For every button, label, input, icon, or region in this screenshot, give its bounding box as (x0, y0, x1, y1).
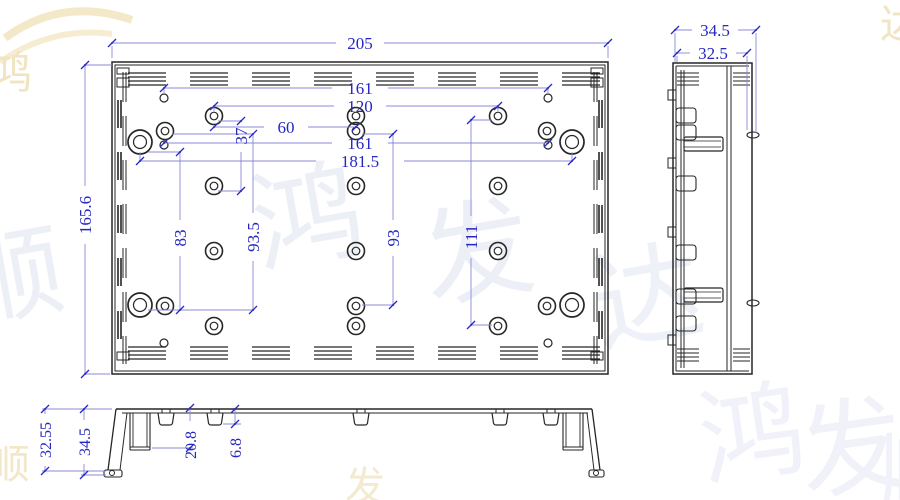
dim-tick-dot (83, 408, 85, 410)
dim-label-93-5: 93.5 (244, 222, 263, 252)
watermark-accent-char: 顺 (0, 442, 30, 488)
screw-boss-inner (210, 112, 218, 120)
screw-boss-inner (352, 322, 360, 330)
screw-boss-outer (206, 178, 223, 195)
bottom-tabs (158, 409, 559, 425)
dim-label-83: 83 (171, 230, 190, 247)
dim-tick-dot (84, 373, 86, 375)
watermark-char: 顺 (0, 211, 73, 344)
dim-label-165-6: 165.6 (76, 196, 95, 234)
dim-tick-dot (179, 151, 181, 153)
pilot-hole (544, 339, 552, 347)
dim-tick-dot (84, 64, 86, 66)
dim-tick-dot (547, 142, 549, 144)
dim-label-37: 37 (232, 127, 251, 145)
dim-tick-dot (44, 408, 46, 410)
dim-label-20-8: 20.8 (183, 431, 200, 459)
corner-boss-inner (134, 136, 147, 149)
dim-tick-dot (252, 309, 254, 311)
bottom-left-foot-pad (110, 471, 115, 476)
dim-tick-dot (392, 304, 394, 306)
dim-tick-dot (607, 42, 609, 44)
cad-drawing-sheet: 鸿 发 顺 达 鸿 发 顺 达 鸿 顺 发 (0, 0, 900, 500)
corner-boss-outer (560, 130, 584, 154)
dim-tick-dot (252, 133, 254, 135)
dim-label-181-5: 181.5 (341, 152, 379, 171)
watermark-char: 顺 (878, 422, 900, 500)
watermark-accent-char: 发 (345, 464, 385, 500)
screw-boss-outer (206, 243, 223, 260)
bottom-tab (353, 413, 369, 425)
dim-label-120: 120 (347, 97, 373, 116)
dim-label-side-32-5: 32.5 (698, 44, 728, 63)
dim-tick-dot (163, 142, 165, 144)
dim-tick-dot (674, 29, 676, 31)
dim-label-205: 205 (347, 34, 373, 53)
side-clip (676, 108, 696, 123)
dim-tick-dot (392, 133, 394, 135)
dim-tick-dot (139, 160, 141, 162)
dim-tick-dot (240, 190, 242, 192)
dim-tick-dot (470, 324, 472, 326)
bottom-tab (492, 413, 508, 425)
watermark-accent-char: 达 (880, 2, 900, 48)
screw-boss-outer (157, 123, 174, 140)
screw-boss-outer (206, 318, 223, 335)
watermark-char: 鸿 (692, 367, 813, 500)
pilot-hole (160, 339, 168, 347)
pilot-hole (160, 94, 168, 102)
screw-boss-inner (543, 127, 551, 135)
screw-boss-inner (210, 182, 218, 190)
side-clip (676, 125, 696, 140)
dim-tick-dot (179, 309, 181, 311)
side-clip (676, 176, 696, 191)
dim-label-32-55: 32.55 (38, 422, 55, 458)
screw-boss-outer (157, 298, 174, 315)
dim-tick-dot (234, 408, 236, 410)
screw-boss-inner (543, 302, 551, 310)
dim-tick-dot (240, 120, 242, 122)
dim-tick-dot (213, 126, 215, 128)
screw-boss-outer (490, 318, 507, 335)
screw-boss-outer (348, 298, 365, 315)
screw-boss-inner (161, 127, 169, 135)
dim-tick-dot (189, 407, 191, 409)
watermark-char: 发 (412, 180, 543, 325)
dim-tick-dot (234, 423, 236, 425)
side-nub (668, 90, 676, 100)
dim-tick-dot (497, 105, 499, 107)
bottom-tab (158, 413, 174, 425)
bottom-right-foot-pad (594, 471, 599, 476)
dim-label-161-top: 161 (347, 79, 373, 98)
dim-tick-dot (470, 119, 472, 121)
dim-tick-dot (571, 160, 573, 162)
bottom-left-leg (108, 409, 116, 470)
corner-boss-outer (128, 130, 152, 154)
dim-tick-dot (44, 470, 46, 472)
dim-tick-dot (163, 87, 165, 89)
bottom-right-leg (587, 413, 594, 470)
dim-label-111: 111 (462, 225, 481, 249)
side-clip-oval (747, 300, 759, 306)
dim-label-60: 60 (278, 118, 295, 137)
dim-tick-dot (755, 29, 757, 31)
corner-boss-inner (134, 299, 147, 312)
dim-label-side-34-5: 34.5 (700, 21, 730, 40)
screw-boss-outer (348, 318, 365, 335)
pilot-hole (544, 94, 552, 102)
screw-boss-outer (539, 123, 556, 140)
screw-boss-inner (161, 302, 169, 310)
dim-tick-dot (547, 87, 549, 89)
side-clip-oval (747, 132, 759, 138)
dim-tick-dot (111, 42, 113, 44)
bottom-tab (207, 413, 223, 425)
bottom-tab (543, 413, 559, 425)
drawing-svg: 鸿 发 顺 达 鸿 发 顺 达 鸿 顺 发 (0, 0, 900, 500)
dim-tick-dot (746, 52, 748, 54)
screw-boss-inner (494, 112, 502, 120)
dim-tick-dot (676, 52, 678, 54)
corner-boss-outer (560, 293, 584, 317)
corner-boss-outer (128, 293, 152, 317)
side-tab (684, 137, 723, 151)
screw-boss-inner (494, 322, 502, 330)
screw-boss-inner (210, 247, 218, 255)
dim-tick-dot (355, 126, 357, 128)
dim-label-6-8: 6.8 (228, 438, 245, 458)
bottom-left-leg (120, 413, 127, 470)
watermark-accent-char: 鸿 (0, 48, 32, 99)
dim-label-161-mid: 161 (347, 134, 373, 153)
screw-boss-inner (352, 302, 360, 310)
dim-label-93: 93 (384, 230, 403, 247)
corner-boss-inner (566, 136, 579, 149)
side-nub (668, 158, 676, 168)
dim-label-bottom-34-5: 34.5 (77, 428, 94, 456)
screw-boss-inner (210, 322, 218, 330)
dim-tick-dot (213, 105, 215, 107)
corner-boss-inner (566, 299, 579, 312)
dim-tick-dot (83, 474, 85, 476)
